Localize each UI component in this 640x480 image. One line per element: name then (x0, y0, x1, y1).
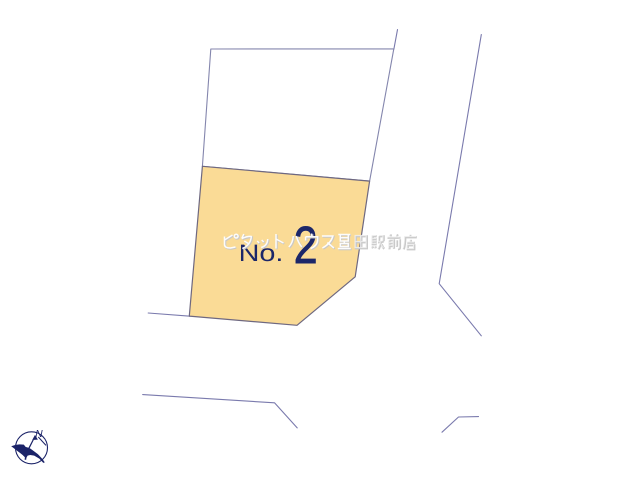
svg-text:N: N (35, 429, 43, 440)
